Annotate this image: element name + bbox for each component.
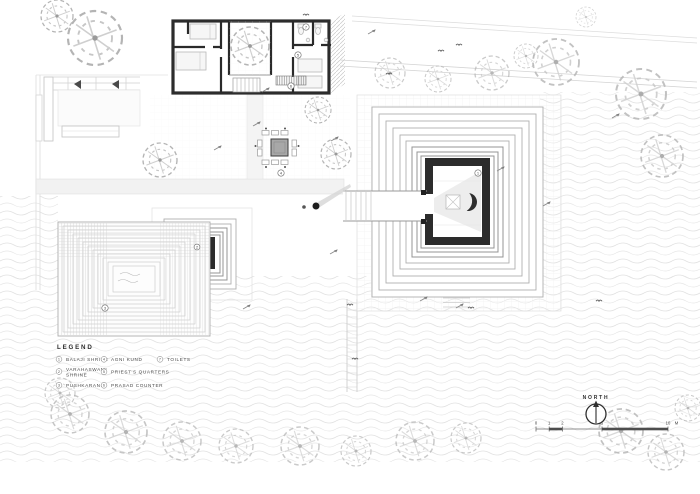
fire-pit (271, 139, 288, 156)
site-plan-drawing: 1 2 3 4 5 6 7 LEGEND 1 BA (0, 0, 700, 494)
callout-varahaswami-shrine: 2 (194, 244, 200, 250)
callout-number: 6 (290, 84, 292, 88)
legend-item-number: 6 (103, 384, 105, 388)
bed (176, 52, 206, 70)
legend-item-label: TOILETS (167, 357, 191, 362)
dhwaja-stambha (313, 203, 320, 210)
callout-agni-kund: 4 (278, 170, 284, 176)
scale-tick-label: 10 (666, 421, 671, 426)
door-jamb (421, 219, 426, 224)
legend-item-number: 5 (103, 370, 105, 374)
small-pillar (302, 205, 306, 209)
callout-number: 7 (305, 25, 307, 29)
callout-balaji-shrine: 1 (475, 170, 481, 176)
legend-title: LEGEND (57, 344, 94, 351)
callout-number: 4 (280, 171, 282, 175)
legend-item-label: PRIEST'S QUARTERS (111, 370, 169, 375)
site-plan-sheet: 1 2 3 4 5 6 7 LEGEND 1 BA (0, 0, 700, 494)
legend-item-number: 2 (58, 370, 60, 374)
legend-item-label: PUSHKARANI (66, 383, 102, 388)
bench (62, 126, 119, 137)
legend-item-number: 3 (58, 384, 60, 388)
callout-number: 5 (297, 53, 299, 57)
bed (190, 24, 216, 39)
callout-toilets: 7 (303, 24, 309, 30)
bed (298, 59, 322, 72)
building-shadow (331, 13, 345, 93)
entrance-corridor (343, 191, 425, 221)
scale-unit-label: M (675, 421, 679, 426)
callout-number: 2 (196, 245, 198, 249)
legend-item-number: 1 (58, 358, 60, 362)
north-label: NORTH (583, 395, 610, 401)
pushkarani-tank (58, 222, 210, 336)
legend-item-number: 4 (103, 358, 105, 362)
legend-item-label: AGNI KUND (111, 357, 142, 362)
callout-priests-quarters: 5 (295, 52, 301, 58)
callout-pushkarani: 3 (102, 305, 108, 311)
callout-prasad-counter: 6 (288, 83, 294, 89)
callout-number: 1 (477, 171, 479, 175)
legend-item-number: 7 (159, 358, 161, 362)
main-shrine (343, 95, 561, 311)
legend-item-label: PRASAD COUNTER (111, 383, 163, 388)
callout-number: 3 (104, 306, 106, 310)
door-jamb (421, 190, 426, 195)
